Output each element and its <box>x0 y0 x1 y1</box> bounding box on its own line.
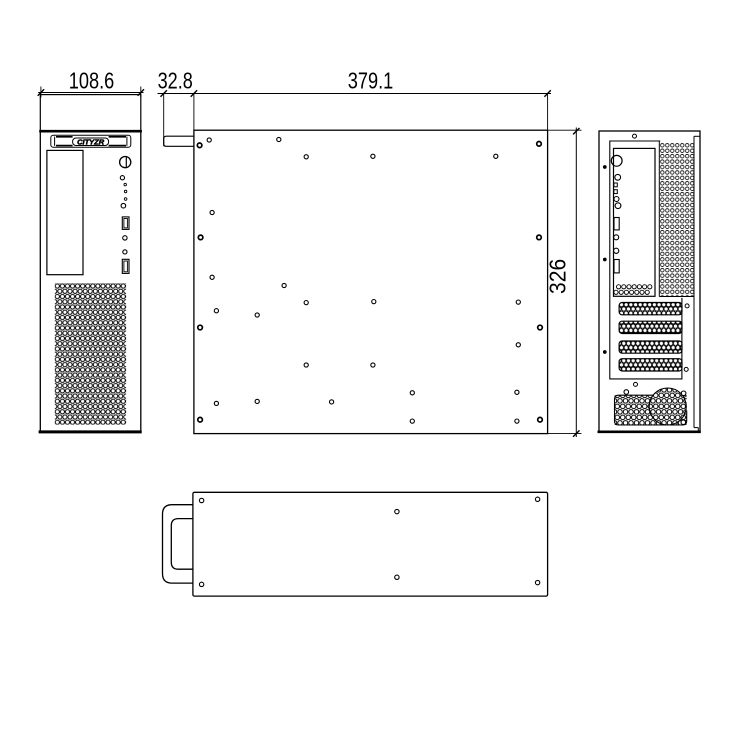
svg-text:CITYZR: CITYZR <box>77 137 105 146</box>
svg-text:32.8: 32.8 <box>158 68 193 94</box>
svg-text:326: 326 <box>545 259 571 294</box>
svg-text:108.6: 108.6 <box>69 68 115 94</box>
svg-text:379.1: 379.1 <box>348 68 394 94</box>
